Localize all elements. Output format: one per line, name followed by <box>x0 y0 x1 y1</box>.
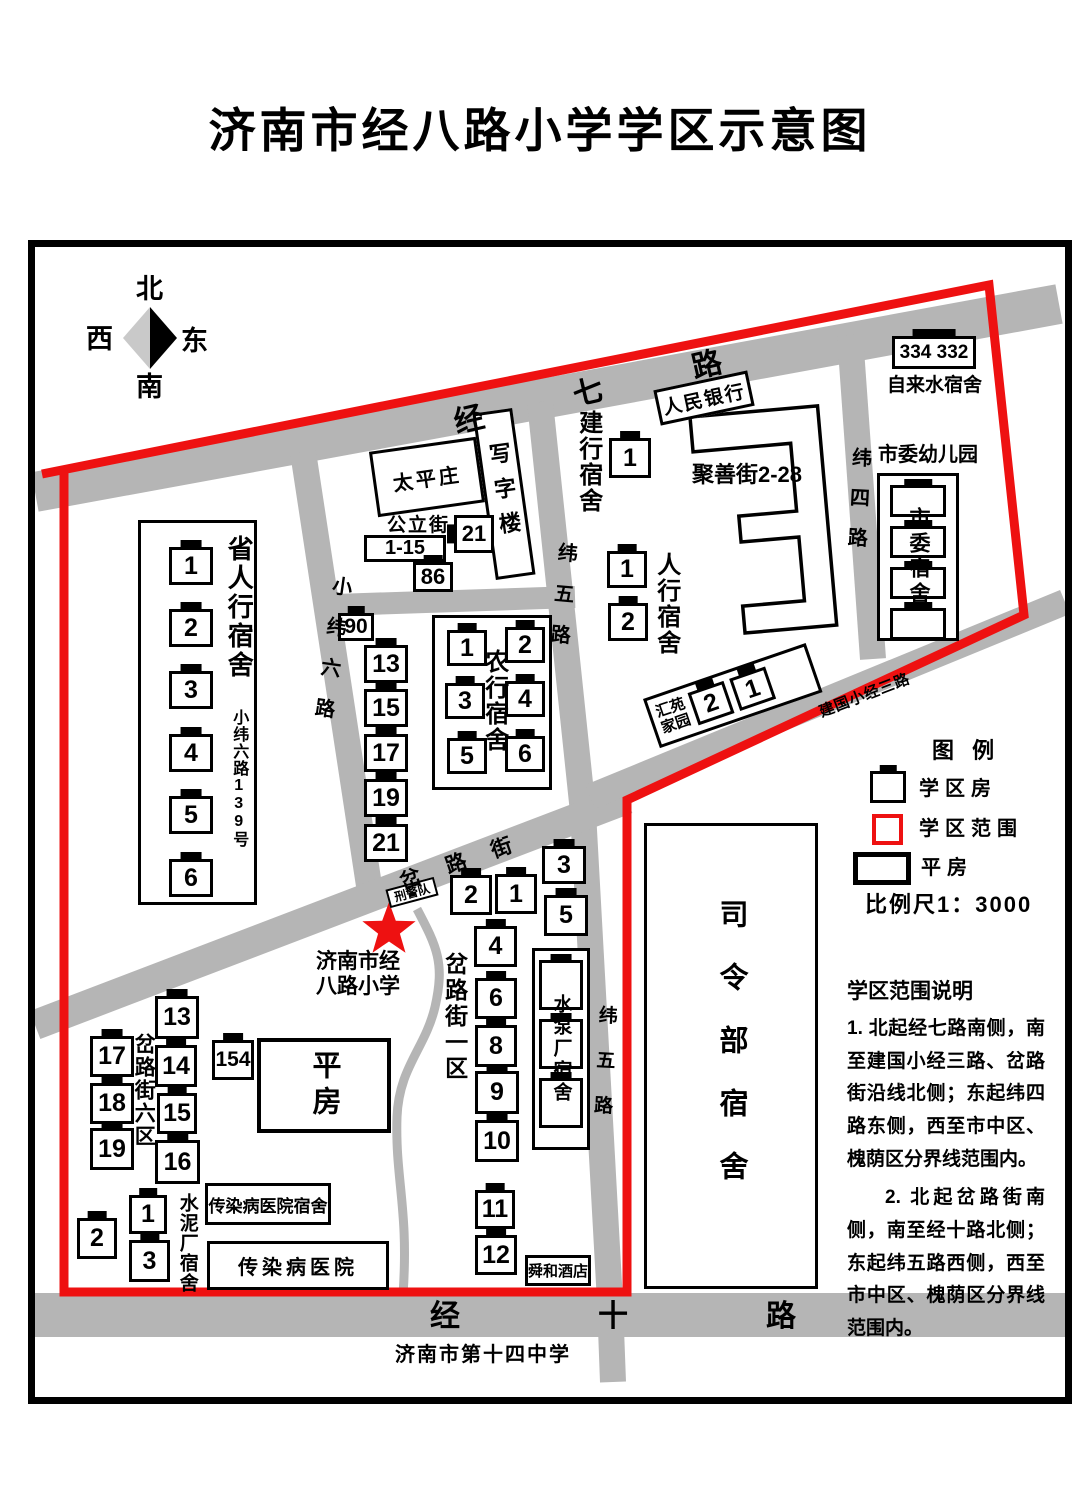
shuibeng-block: 水泵厂宿舍 <box>532 948 590 1150</box>
building-unit: 6 <box>169 859 213 897</box>
jushan-label: 聚善街2-28 <box>692 462 802 488</box>
district-description: 学区范围说明 1. 北起经七路南侧，南至建国小经三路、岔路街沿线北侧；东起纬四路… <box>847 975 1045 1346</box>
building-unit: 5 <box>169 796 213 834</box>
no14-school-label: 济南市第十四中学 <box>395 1343 571 1367</box>
liuqu-label: 岔路街六区 <box>131 1033 156 1148</box>
building-unit: 4 <box>169 734 213 772</box>
building-unit: 86 <box>413 562 453 592</box>
road-gongli-segment <box>335 597 575 605</box>
building-unit: 2 <box>450 875 492 915</box>
legend-house-cap <box>880 765 897 773</box>
building-unit: 3 <box>169 671 213 709</box>
building-unit: 1 <box>729 666 776 711</box>
shiwei-dorm-label: 市委宿舍 <box>903 507 933 607</box>
compass-south: 南 <box>136 371 163 403</box>
school-name-line2: 八路小学 <box>311 974 405 999</box>
building-unit: 2 <box>505 627 545 663</box>
legend-house-label: 学区房 <box>919 777 997 801</box>
building-unit: 21 <box>364 824 408 862</box>
jianhang-label: 建行宿舍 <box>573 410 602 514</box>
legend-scale: 比例尺1：3000 <box>865 892 1032 918</box>
building-unit: 1 <box>169 547 213 585</box>
chuanran-dorm-box: 传染病医院宿舍 <box>205 1183 331 1225</box>
shiwei-kindergarten-label: 市委幼儿园 <box>878 443 978 467</box>
building-unit: 334 332 <box>892 336 976 369</box>
siling-block: 司令部宿舍 <box>644 823 818 1289</box>
building-unit: 3 <box>129 1240 170 1282</box>
building-unit: 2 <box>688 681 735 726</box>
zilaishui-label: 自来水宿舍 <box>887 375 982 398</box>
compass-west: 西 <box>86 323 113 355</box>
pingfang-label: 平房 <box>303 1050 345 1122</box>
building-unit: 15 <box>364 689 408 727</box>
building-unit: 4 <box>474 926 517 967</box>
shuibeng-label: 水泵厂宿舍 <box>548 994 575 1104</box>
description-paragraph-1: 1. 北起经七路南侧，南至建国小经三路、岔路街沿线北侧；东起纬四路东侧，西至市中… <box>847 1013 1045 1176</box>
shunhe-hotel-box: 舜和酒店 <box>525 1255 591 1286</box>
description-paragraph-2: 2. 北起岔路街南侧，南至经十路北侧；东起纬五路西侧，西至市中区、槐荫区分界线范… <box>847 1182 1045 1345</box>
description-title: 学区范围说明 <box>847 975 1045 1005</box>
building-unit: 12 <box>475 1235 517 1275</box>
legend-range-label: 学区范围 <box>919 817 1023 841</box>
building-unit: 8 <box>475 1025 517 1067</box>
building-unit: 6 <box>505 736 545 772</box>
building-unit: 1 <box>607 551 647 588</box>
building-unit: 1 <box>495 874 537 914</box>
legend-title: 图 例 <box>932 738 1000 764</box>
compass-north: 北 <box>136 273 163 305</box>
building-unit: 19 <box>90 1128 134 1170</box>
building-unit: 17 <box>90 1036 134 1077</box>
renhang-label: 人行宿舍 <box>651 552 680 656</box>
siling-label: 司令部宿舍 <box>710 899 752 1214</box>
yiqu-label: 岔路街一区 <box>440 952 468 1082</box>
legend-house-icon <box>870 771 906 803</box>
school-name-line1: 济南市经 <box>311 949 405 974</box>
map-frame: 北 西 东 南 经七路 小纬六路 纬五路 纬五路 纬四路 建国小经三路 岔路街 … <box>28 240 1072 1404</box>
legend-range-icon <box>872 814 903 845</box>
pingfang-block: 平房 <box>257 1038 391 1133</box>
building-unit: 2 <box>608 603 648 641</box>
building-unit: 3 <box>542 846 586 884</box>
building-unit: 13 <box>364 645 408 683</box>
compass-east: 东 <box>181 325 208 357</box>
gongli-street-label: 公立街 <box>387 515 450 538</box>
building-unit: 21 <box>454 515 494 553</box>
building-unit: 1 <box>609 438 651 478</box>
shiwei-dorm-block: 市委宿舍 <box>877 473 959 641</box>
building-unit: 15 <box>157 1093 197 1134</box>
building-unit: 2 <box>169 609 213 647</box>
school-name-label: 济南市经 八路小学 <box>311 949 405 999</box>
nonghang-label: 农行宿舍 <box>479 649 508 753</box>
building-unit: 6 <box>475 978 517 1019</box>
shuini-label: 水泥厂宿舍 <box>175 1193 198 1293</box>
compass-rose-icon <box>121 305 179 371</box>
sheng-renhang-address: 小纬六路139号 <box>229 709 248 848</box>
building-unit: 19 <box>364 779 408 817</box>
building-unit: 2 <box>77 1218 117 1259</box>
chuanran-hospital-box: 传染病医院 <box>207 1241 389 1290</box>
building-unit: 13 <box>155 996 199 1039</box>
building-unit: 17 <box>364 734 408 772</box>
legend-pingfang-label: 平房 <box>921 856 973 880</box>
building-unit: 11 <box>475 1190 515 1229</box>
huiyuan-label: 汇苑 家园 <box>653 695 693 737</box>
building-unit: 154 <box>212 1040 254 1080</box>
building-unit: 16 <box>155 1140 200 1184</box>
building-unit: 4 <box>505 681 545 717</box>
sheng-renhang-label: 省人行宿舍 <box>223 535 254 680</box>
jushan-building-outline <box>690 406 837 636</box>
building-unit: 9 <box>475 1071 519 1114</box>
legend-pingfang-icon <box>853 852 911 885</box>
building-unit: 14 <box>155 1045 197 1087</box>
building-unit: 5 <box>544 895 588 936</box>
building-unit: 18 <box>90 1083 134 1124</box>
building-unit: 10 <box>475 1120 519 1162</box>
page-title: 济南市经八路小学学区示意图 <box>0 92 1080 161</box>
building-unit: 1 <box>129 1195 167 1234</box>
